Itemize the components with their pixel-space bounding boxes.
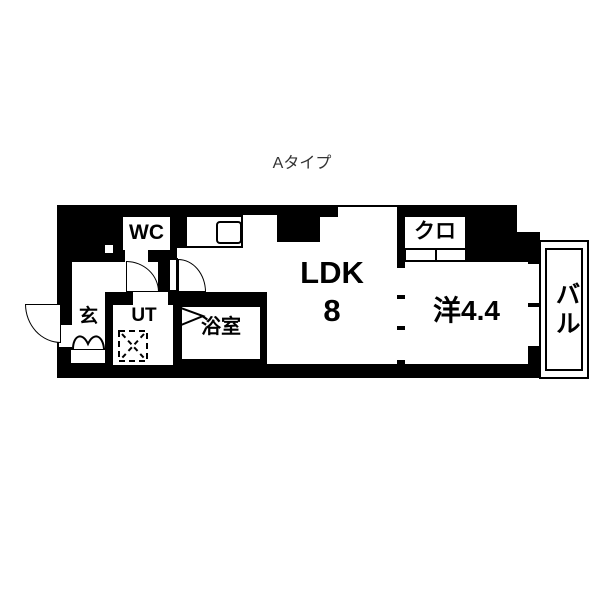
floorplan-canvas: Aタイプ WC 玄 UT [0, 0, 600, 600]
label-western: 洋4.4 [405, 297, 528, 325]
label-wc: WC [123, 222, 170, 243]
label-bathroom: 浴室 [182, 317, 260, 337]
shoe-cabinet-icon [73, 336, 104, 349]
label-ldk-size: 8 [267, 295, 397, 326]
label-utility: UT [118, 306, 170, 325]
label-entrance: 玄 [72, 307, 105, 326]
label-balcony: バル [548, 258, 578, 362]
label-closet: クロ [405, 221, 465, 242]
label-ldk: LDK [267, 257, 397, 288]
